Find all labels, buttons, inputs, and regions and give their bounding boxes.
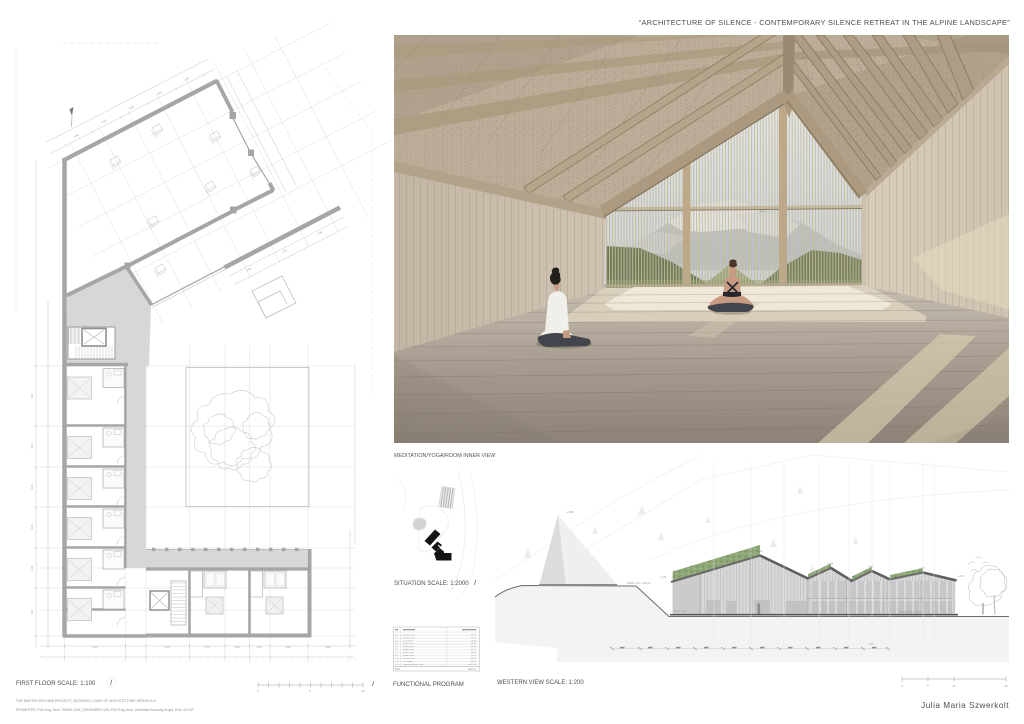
svg-text:44.25: 44.25 [471,640,477,642]
svg-text:Single room: Single room [403,642,414,645]
svg-text:-2.98: -2.98 [868,643,874,646]
svg-text:51.35: 51.35 [471,643,477,645]
svg-text:58.45: 58.45 [471,646,477,648]
svg-text:+4.87: +4.87 [919,567,926,570]
svg-text:I: I [372,681,374,688]
svg-text:Yoga/meditation room: Yoga/meditation room [403,663,423,666]
svg-text:10: 10 [361,689,365,693]
svg-text:PROMOTER: PhD Eng. Arch. PAWEŁ: PROMOTER: PhD Eng. Arch. PAWEŁ ŻUK | REV… [16,707,194,712]
svg-text:LEVEL 0.00 = 1284: LEVEL 0.00 = 1284 [900,611,921,614]
svg-text:I: I [110,680,112,687]
svg-text:+5.46: +5.46 [827,563,834,566]
svg-text:65.55: 65.55 [471,649,477,651]
svg-text:6.40: 6.40 [92,645,98,649]
svg-text:I: I [474,580,476,587]
svg-text:Double room: Double room [403,636,415,639]
svg-text:20: 20 [1004,684,1008,688]
svg-text:4.40: 4.40 [30,609,34,615]
svg-text:4.00: 4.00 [325,645,331,649]
svg-text:4.40: 4.40 [30,443,34,449]
svg-text:Total: Total [395,668,400,671]
svg-text:100.105: 100.105 [468,664,476,666]
svg-text:10: 10 [952,684,956,688]
svg-text:Double room: Double room [403,657,415,660]
svg-text:4.40: 4.40 [30,484,34,490]
svg-text:LEVEL 0.00: LEVEL 0.00 [673,610,686,613]
svg-text:Single room: Single room [403,645,414,648]
svg-text:4.40: 4.40 [30,524,34,530]
svg-text:3.70: 3.70 [204,645,210,649]
svg-text:Single room: Single room [403,654,414,657]
svg-text:Julia Maria Szwerkolt: Julia Maria Szwerkolt [921,701,1009,710]
svg-text:“ARCHITECTURE OF SILENCE - CON: “ARCHITECTURE OF SILENCE - CONTEMPORARY … [639,18,1010,27]
svg-text:Single room: Single room [403,651,414,654]
svg-text:+7.08: +7.08 [756,550,763,553]
svg-text:79.75: 79.75 [471,655,477,657]
svg-text:WESTERN VIEW SCALE: 1:200: WESTERN VIEW SCALE: 1:200 [497,680,584,686]
svg-text:+3.08: +3.08 [958,575,965,578]
svg-text:FUNCTIONAL PROGRAM: FUNCTIONAL PROGRAM [393,682,464,688]
svg-text:2.00: 2.00 [256,645,262,649]
svg-text:30.05: 30.05 [471,634,477,636]
svg-text:2.00: 2.00 [285,645,291,649]
svg-text:Circulation: Circulation [403,639,414,642]
svg-text:THE MASTER DIPLOMA PROJECT | 2: THE MASTER DIPLOMA PROJECT | 2023/2026 |… [16,699,156,703]
svg-text:86.85: 86.85 [471,658,477,660]
svg-text:LEVEL 0.00 = 1284 M: LEVEL 0.00 = 1284 M [627,582,650,585]
svg-text:Double room: Double room [403,633,415,636]
svg-text:SITUATION SCALE: 1:2000: SITUATION SCALE: 1:2000 [394,581,469,587]
svg-text:Single room: Single room [403,648,414,651]
svg-text:4.00: 4.00 [234,645,240,649]
svg-text:37.15: 37.15 [471,637,477,639]
svg-text:4.40: 4.40 [30,393,34,399]
svg-text:+2.598: +2.598 [566,511,574,514]
svg-text:72.65: 72.65 [471,652,477,654]
svg-text:+3.08: +3.08 [660,576,667,579]
svg-text:93.95: 93.95 [471,661,477,663]
svg-text:4.40: 4.40 [30,565,34,571]
svg-text:Circulation: Circulation [403,660,414,663]
svg-text:+4.87: +4.87 [868,566,875,569]
svg-text:FIRST FLOOR SCALE: 1:100: FIRST FLOOR SCALE: 1:100 [16,681,96,687]
svg-text:3.25: 3.25 [164,645,170,649]
svg-text:MEDITATION/YOGA/ROOM INNER VIE: MEDITATION/YOGA/ROOM INNER VIEW [394,453,496,459]
svg-text:1024.47: 1024.47 [468,669,477,671]
